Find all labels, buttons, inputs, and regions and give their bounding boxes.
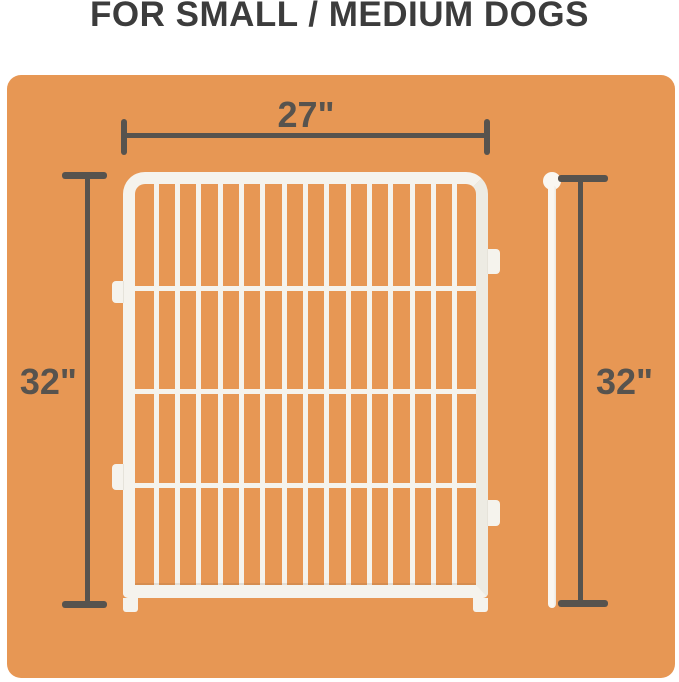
- left-height-dimension-line: [85, 175, 90, 605]
- width-dimension-label: 27": [122, 97, 490, 133]
- fence-bar: [367, 184, 372, 585]
- fence-bar: [154, 184, 159, 585]
- width-dimension-right-cap: [484, 119, 490, 155]
- fence-foot-right: [473, 598, 488, 612]
- mounting-tab-right-lower: [487, 500, 500, 526]
- fence-bar: [324, 184, 329, 585]
- fence-bar: [282, 184, 287, 585]
- right-height-dimension-top-cap: [558, 175, 608, 182]
- fence-bar: [196, 184, 201, 585]
- fence-bar: [260, 184, 265, 585]
- fence-bar: [303, 184, 308, 585]
- right-height-dimension-label: 32": [596, 364, 653, 400]
- mounting-tab-right-upper: [487, 249, 500, 274]
- fence-bar: [452, 184, 457, 585]
- left-height-dimension-top-cap: [62, 172, 107, 179]
- fence-crossbar: [135, 286, 476, 291]
- fence-bar: [239, 184, 244, 585]
- left-height-dimension-bottom-cap: [62, 601, 107, 608]
- fence-crossbar: [135, 483, 476, 488]
- width-dimension-left-cap: [121, 119, 127, 155]
- fence-bar: [218, 184, 223, 585]
- width-dimension-line: [122, 133, 490, 138]
- fence-bar: [410, 184, 415, 585]
- fence-bar: [431, 184, 436, 585]
- fence-panel: [123, 172, 488, 598]
- infographic: FOR SMALL / MEDIUM DOGS 27" 32": [0, 0, 679, 682]
- fence-bar: [346, 184, 351, 585]
- right-height-dimension-bottom-cap: [558, 600, 608, 607]
- fence-foot-left: [123, 598, 138, 612]
- pole-shaft: [548, 185, 556, 608]
- fence-bar: [175, 184, 180, 585]
- right-height-dimension-line: [578, 177, 583, 604]
- orange-panel: 27" 32" 32": [7, 75, 675, 678]
- page-title: FOR SMALL / MEDIUM DOGS: [0, 0, 679, 34]
- fence-crossbar: [135, 389, 476, 394]
- mounting-tab-left-lower: [112, 464, 124, 490]
- fence-bar: [388, 184, 393, 585]
- left-height-dimension-label: 32": [7, 364, 77, 400]
- mounting-tab-left-upper: [112, 281, 124, 303]
